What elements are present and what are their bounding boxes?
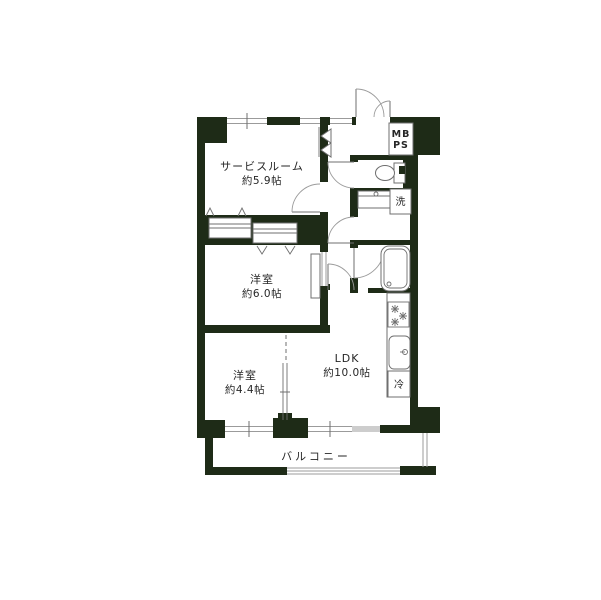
hanger-icon: [285, 246, 295, 254]
toilet-door: [328, 162, 354, 188]
western-room-6-name: 洋室: [250, 272, 274, 286]
washing-machine: 洗: [390, 189, 411, 214]
washing-machine-label: 洗: [396, 196, 406, 208]
balcony-name: バルコニー: [281, 450, 351, 463]
kitchen-counter: 冷: [387, 293, 410, 397]
closet-service-room: [206, 208, 251, 238]
western-room-4-4-size: 約4.4帖: [225, 383, 265, 396]
window-western-4-4: [225, 421, 273, 437]
toilet-icon: [376, 163, 406, 183]
bath-door: [354, 248, 384, 278]
bathtub-icon: [381, 246, 410, 291]
hanger-icon: [206, 208, 214, 216]
closets: [206, 208, 297, 254]
washroom-door: [328, 217, 354, 243]
service-room-door: [292, 184, 320, 212]
western-room-6-size: 約6.0帖: [242, 287, 282, 300]
window-hall-1: [300, 117, 320, 125]
window-hall-2: [330, 117, 352, 125]
hanger-icon: [257, 246, 267, 254]
fixtures: MB PS 洗: [358, 123, 413, 397]
floor-plan: MB PS 洗: [0, 0, 601, 600]
window-service-room: [227, 113, 267, 129]
western-4-4-sliding-door: [280, 335, 290, 420]
refrigerator: 冷: [388, 371, 410, 397]
window-ldk-1: [308, 421, 352, 437]
pipe-space-label: PS: [393, 140, 409, 151]
closet-western-6: [253, 223, 297, 254]
entrance-door: [356, 89, 390, 117]
refrigerator-label: 冷: [394, 378, 404, 391]
meter-box-label: MB: [392, 129, 411, 140]
service-room-size: 約5.9帖: [242, 174, 282, 187]
floor-plan-page: MB PS 洗: [0, 0, 601, 600]
vanity-icon: [358, 191, 390, 208]
window-ldk-2: [352, 425, 380, 433]
entrance-opening: [356, 117, 390, 125]
western-room-4-4-name: 洋室: [233, 368, 257, 382]
ldk-size: 約10.0帖: [323, 366, 370, 379]
room-labels: サービスルーム 約5.9帖 洋室 約6.0帖 洋室 約4.4帖 LDK 約10.…: [220, 160, 371, 463]
service-room-name: サービスルーム: [220, 160, 304, 173]
meter-box: MB PS: [389, 123, 413, 155]
hanger-icon: [238, 208, 246, 216]
ldk-name: LDK: [335, 352, 360, 365]
